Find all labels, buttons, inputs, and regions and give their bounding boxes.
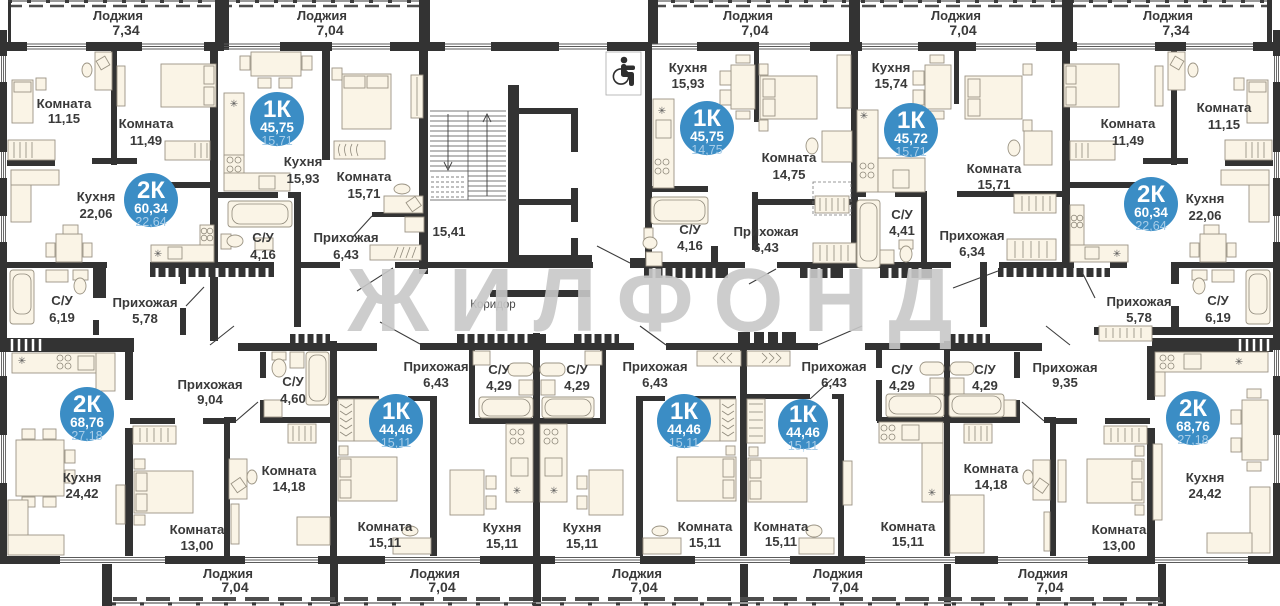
svg-text:✳: ✳ (513, 486, 521, 497)
svg-text:4,16: 4,16 (250, 247, 276, 262)
svg-text:7,04: 7,04 (949, 22, 976, 38)
svg-text:14,18: 14,18 (272, 479, 305, 494)
svg-text:7,04: 7,04 (831, 579, 858, 595)
svg-text:Прихожая: Прихожая (1032, 360, 1097, 375)
svg-text:Лоджия: Лоджия (93, 8, 143, 23)
svg-text:С/У: С/У (891, 207, 913, 222)
svg-text:15,74: 15,74 (874, 76, 908, 91)
svg-text:С/У: С/У (51, 293, 73, 308)
svg-text:15,71: 15,71 (977, 177, 1010, 192)
svg-text:Кухня: Кухня (77, 189, 116, 204)
svg-text:1К: 1К (897, 107, 925, 134)
svg-text:1К: 1К (382, 398, 410, 425)
svg-text:Комната: Комната (678, 519, 733, 534)
svg-text:15,71: 15,71 (261, 134, 292, 148)
svg-text:2К: 2К (1179, 395, 1207, 422)
svg-text:44,46: 44,46 (667, 422, 701, 437)
svg-text:22,06: 22,06 (79, 206, 112, 221)
svg-text:С/У: С/У (679, 222, 701, 237)
svg-text:27,18: 27,18 (71, 429, 102, 443)
svg-text:7,34: 7,34 (1162, 22, 1189, 38)
svg-text:14,18: 14,18 (974, 477, 1007, 492)
svg-text:Комната: Комната (170, 522, 225, 537)
svg-text:15,11: 15,11 (765, 534, 797, 549)
svg-text:6,19: 6,19 (49, 310, 75, 325)
svg-text:7,34: 7,34 (112, 22, 139, 38)
svg-text:✳: ✳ (154, 249, 162, 260)
svg-text:Прихожая: Прихожая (177, 377, 242, 392)
svg-text:6,43: 6,43 (821, 375, 847, 390)
svg-text:15,93: 15,93 (286, 171, 319, 186)
svg-text:Комната: Комната (1092, 522, 1147, 537)
svg-text:Комната: Комната (358, 519, 413, 534)
svg-text:15,11: 15,11 (369, 535, 401, 550)
svg-text:15,11: 15,11 (486, 536, 518, 551)
svg-text:11,49: 11,49 (1112, 133, 1144, 148)
svg-text:Кухня: Кухня (1186, 470, 1225, 485)
svg-text:Прихожая: Прихожая (939, 228, 1004, 243)
svg-text:13,00: 13,00 (1102, 538, 1135, 553)
svg-text:11,15: 11,15 (48, 111, 80, 126)
svg-text:11,49: 11,49 (130, 133, 162, 148)
svg-text:9,04: 9,04 (197, 392, 223, 407)
svg-text:15,93: 15,93 (671, 76, 704, 91)
svg-text:7,04: 7,04 (1036, 579, 1063, 595)
svg-text:✳: ✳ (18, 356, 26, 367)
svg-text:22,64: 22,64 (135, 215, 166, 229)
svg-text:Лоджия: Лоджия (1143, 8, 1193, 23)
svg-text:13,00: 13,00 (180, 538, 213, 553)
svg-text:15,71: 15,71 (895, 145, 926, 159)
svg-text:45,72: 45,72 (894, 131, 928, 146)
svg-text:24,42: 24,42 (65, 486, 98, 501)
svg-text:Кухня: Кухня (669, 60, 708, 75)
svg-text:Кухня: Кухня (63, 470, 102, 485)
svg-text:5,78: 5,78 (132, 311, 158, 326)
svg-text:22,64: 22,64 (1135, 219, 1166, 233)
svg-text:Комната: Комната (119, 116, 174, 131)
svg-text:✳: ✳ (1235, 357, 1243, 368)
svg-text:2К: 2К (137, 177, 165, 204)
svg-text:7,04: 7,04 (221, 579, 248, 595)
svg-text:6,43: 6,43 (423, 375, 449, 390)
svg-text:15,11: 15,11 (892, 534, 924, 549)
svg-text:Прихожая: Прихожая (112, 295, 177, 310)
svg-text:Кухня: Кухня (563, 520, 602, 535)
svg-text:Комната: Комната (964, 461, 1019, 476)
svg-text:44,46: 44,46 (786, 425, 820, 440)
svg-text:С/У: С/У (488, 362, 510, 377)
svg-text:22,06: 22,06 (1188, 208, 1221, 223)
svg-text:60,34: 60,34 (1134, 205, 1168, 220)
svg-text:45,75: 45,75 (690, 129, 724, 144)
svg-text:Прихожая: Прихожая (313, 230, 378, 245)
svg-text:С/У: С/У (566, 362, 588, 377)
svg-text:С/У: С/У (891, 362, 913, 377)
svg-text:4,29: 4,29 (486, 378, 512, 393)
svg-text:Комната: Комната (337, 169, 392, 184)
svg-text:45,75: 45,75 (260, 120, 294, 135)
svg-text:✳: ✳ (658, 106, 666, 117)
svg-text:4,29: 4,29 (972, 378, 998, 393)
svg-text:Комната: Комната (262, 463, 317, 478)
svg-text:15,11: 15,11 (566, 536, 598, 551)
svg-text:15,11: 15,11 (381, 436, 411, 450)
svg-text:24,42: 24,42 (1188, 486, 1221, 501)
svg-text:С/У: С/У (974, 362, 996, 377)
svg-text:Комната: Комната (881, 519, 936, 534)
svg-text:Комната: Комната (762, 150, 817, 165)
svg-text:4,41: 4,41 (889, 223, 915, 238)
svg-text:✳: ✳ (860, 111, 868, 122)
svg-text:4,60: 4,60 (280, 391, 306, 406)
svg-text:44,46: 44,46 (379, 422, 413, 437)
svg-text:Кухня: Кухня (872, 60, 911, 75)
svg-text:6,43: 6,43 (642, 375, 668, 390)
svg-text:ЖИЛФОНД: ЖИЛФОНД (346, 251, 972, 351)
svg-text:2К: 2К (1137, 181, 1165, 208)
svg-text:7,04: 7,04 (316, 22, 343, 38)
svg-text:11,15: 11,15 (1208, 117, 1240, 132)
svg-text:Комната: Комната (754, 519, 809, 534)
svg-text:7,04: 7,04 (630, 579, 657, 595)
svg-text:9,35: 9,35 (1052, 375, 1078, 390)
svg-text:2К: 2К (73, 391, 101, 418)
svg-text:Прихожая: Прихожая (622, 359, 687, 374)
svg-text:1К: 1К (670, 398, 698, 425)
svg-text:Лоджия: Лоджия (931, 8, 981, 23)
svg-text:Кухня: Кухня (483, 520, 522, 535)
svg-text:Кухня: Кухня (1186, 191, 1225, 206)
svg-text:Лоджия: Лоджия (297, 8, 347, 23)
svg-text:Комната: Комната (37, 96, 92, 111)
svg-text:✳: ✳ (928, 488, 936, 499)
svg-text:5,78: 5,78 (1126, 310, 1152, 325)
svg-text:15,41: 15,41 (432, 224, 465, 239)
svg-text:27,18: 27,18 (1177, 433, 1208, 447)
svg-text:14,75: 14,75 (691, 143, 722, 157)
svg-text:1К: 1К (789, 401, 817, 428)
svg-text:С/У: С/У (252, 230, 274, 245)
svg-text:Лоджия: Лоджия (723, 8, 773, 23)
svg-text:7,04: 7,04 (741, 22, 768, 38)
svg-text:Прихожая: Прихожая (1106, 294, 1171, 309)
svg-text:Прихожая: Прихожая (801, 359, 866, 374)
svg-text:С/У: С/У (282, 374, 304, 389)
svg-text:15,11: 15,11 (669, 436, 699, 450)
svg-text:60,34: 60,34 (134, 201, 168, 216)
svg-text:Кухня: Кухня (284, 154, 323, 169)
svg-text:4,29: 4,29 (889, 378, 915, 393)
svg-text:4,29: 4,29 (564, 378, 590, 393)
svg-text:1К: 1К (693, 105, 721, 132)
svg-text:Прихожая: Прихожая (403, 359, 468, 374)
svg-text:Комната: Комната (1197, 100, 1252, 115)
svg-text:15,11: 15,11 (788, 439, 818, 453)
svg-text:Прихожая: Прихожая (733, 224, 798, 239)
svg-text:С/У: С/У (1207, 293, 1229, 308)
svg-text:1К: 1К (263, 96, 291, 123)
svg-text:68,76: 68,76 (1176, 419, 1210, 434)
svg-text:✳: ✳ (1113, 249, 1121, 260)
svg-text:15,71: 15,71 (347, 186, 380, 201)
svg-text:Комната: Комната (967, 161, 1022, 176)
svg-text:15,11: 15,11 (689, 535, 721, 550)
svg-text:✳: ✳ (230, 99, 238, 110)
svg-text:6,19: 6,19 (1205, 310, 1231, 325)
svg-text:✳: ✳ (550, 486, 558, 497)
svg-text:14,75: 14,75 (772, 167, 805, 182)
svg-text:7,04: 7,04 (428, 579, 455, 595)
svg-text:68,76: 68,76 (70, 415, 104, 430)
svg-text:Комната: Комната (1101, 116, 1156, 131)
